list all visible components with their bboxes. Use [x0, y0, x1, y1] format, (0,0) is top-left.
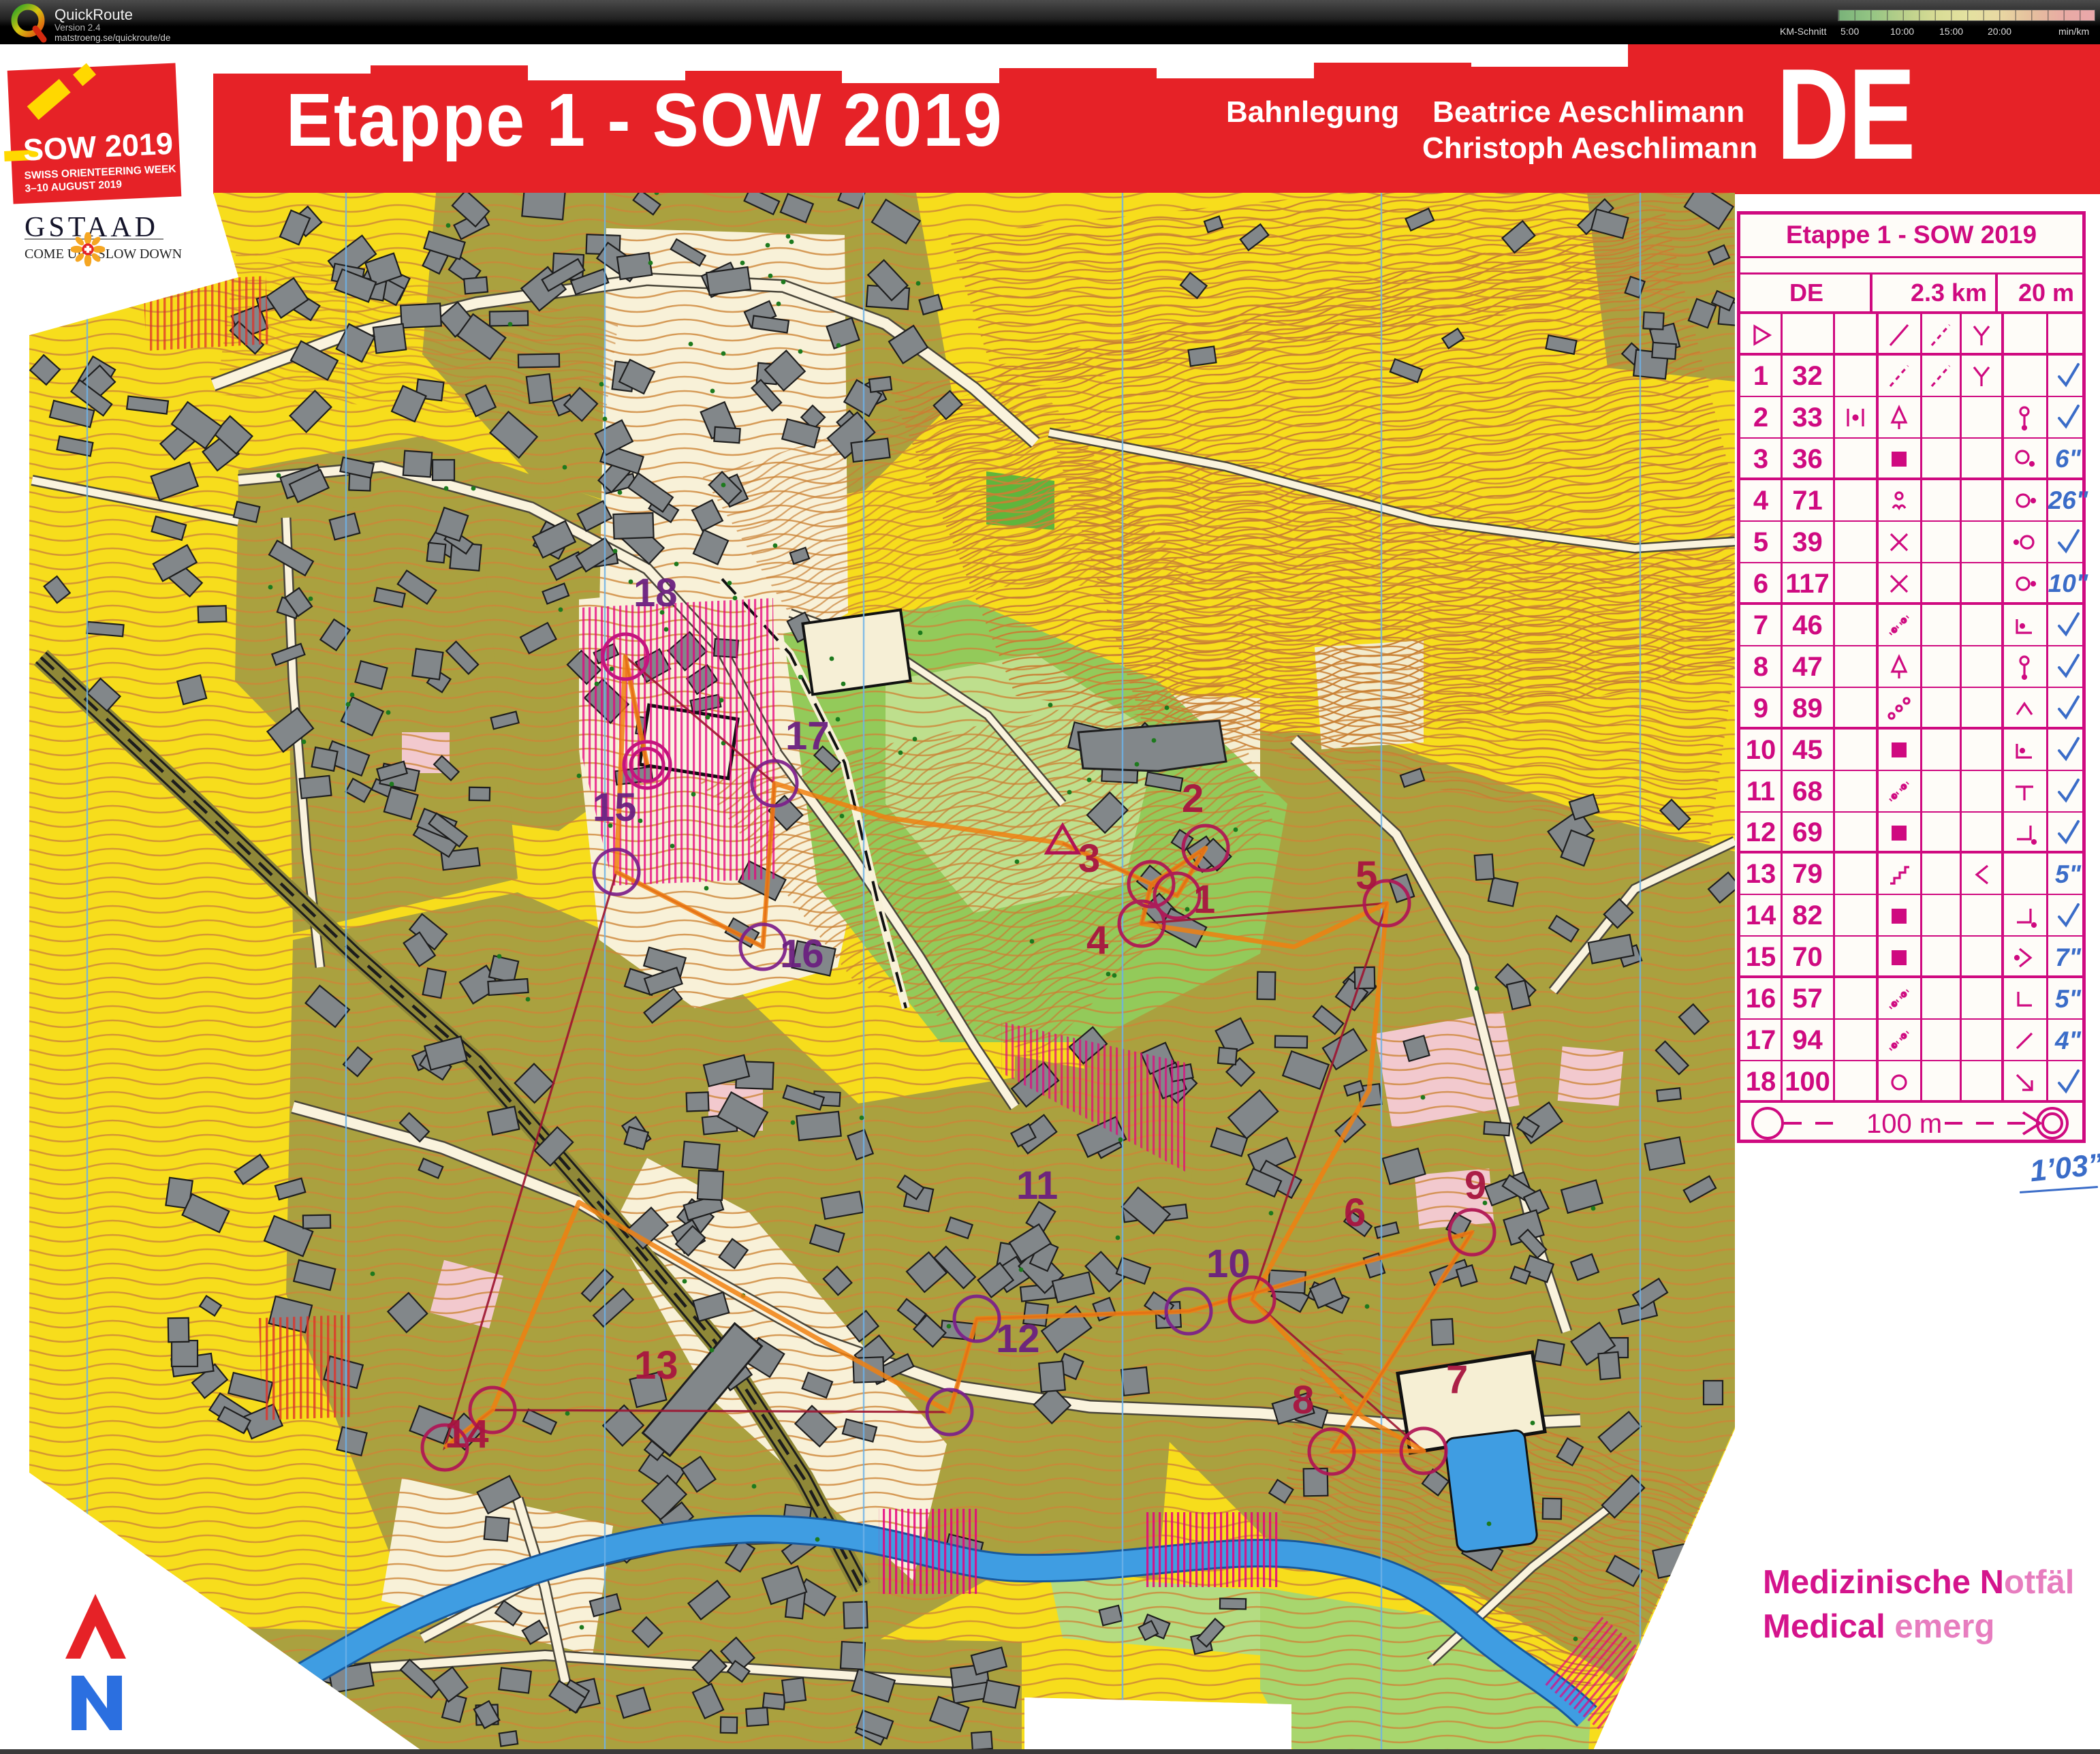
svg-text:18: 18: [633, 571, 678, 615]
svg-text:4: 4: [1086, 918, 1108, 962]
svg-text:15: 15: [593, 785, 637, 830]
svg-text:5: 5: [1355, 853, 1377, 898]
svg-text:13: 13: [634, 1343, 678, 1388]
svg-text:3: 3: [1078, 836, 1100, 881]
svg-text:11: 11: [1016, 1163, 1058, 1208]
svg-text:14: 14: [445, 1412, 489, 1456]
svg-text:10: 10: [1206, 1242, 1251, 1286]
svg-text:9: 9: [1464, 1163, 1486, 1208]
svg-text:7: 7: [1446, 1358, 1468, 1402]
svg-text:6: 6: [1344, 1191, 1366, 1235]
svg-text:12: 12: [996, 1317, 1040, 1361]
svg-text:8: 8: [1292, 1378, 1314, 1422]
svg-text:16: 16: [780, 932, 824, 976]
svg-text:100 m: 100 m: [1866, 1109, 1942, 1139]
svg-text:17: 17: [785, 714, 830, 758]
svg-text:1: 1: [1193, 877, 1215, 922]
svg-text:2: 2: [1182, 777, 1204, 821]
